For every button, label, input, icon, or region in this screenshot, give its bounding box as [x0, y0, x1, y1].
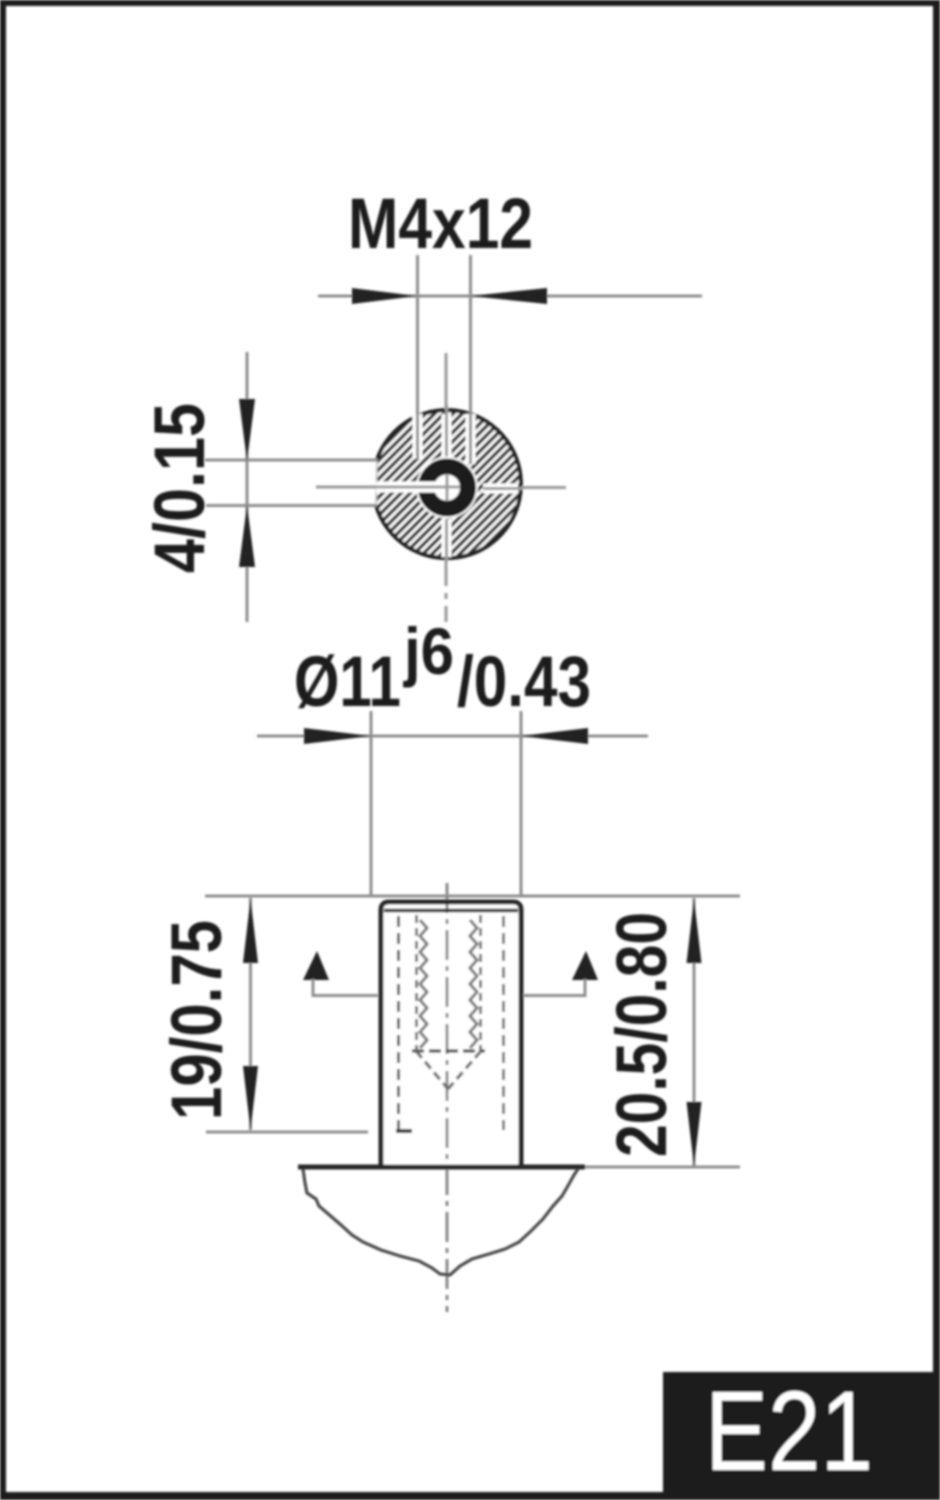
svg-text:19/0.75: 19/0.75 — [158, 920, 237, 1120]
svg-text:/0.43: /0.43 — [457, 643, 591, 722]
svg-text:j6: j6 — [402, 614, 454, 688]
svg-text:20.5/0.80: 20.5/0.80 — [603, 912, 682, 1157]
svg-text:E21: E21 — [705, 1368, 873, 1494]
svg-text:M4x12: M4x12 — [348, 185, 533, 264]
svg-text:Ø11: Ø11 — [294, 643, 401, 722]
svg-text:4/0.15: 4/0.15 — [141, 403, 220, 573]
